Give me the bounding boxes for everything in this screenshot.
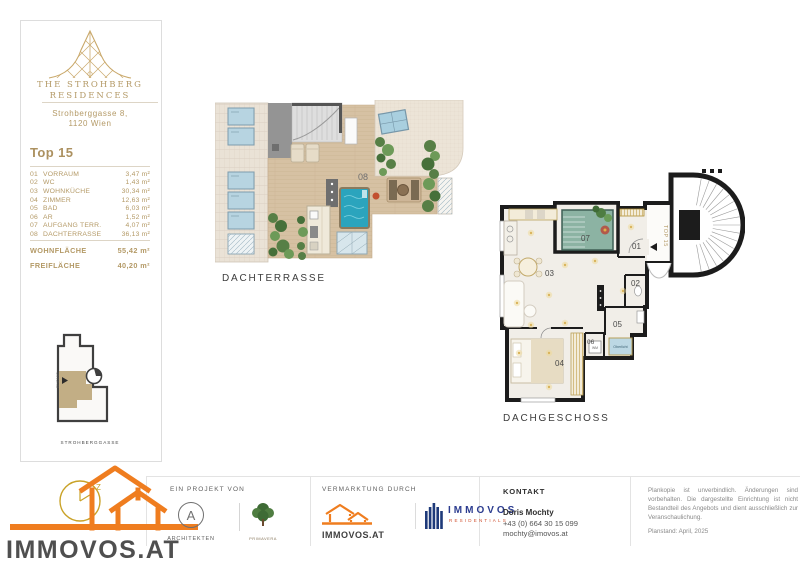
room-no: 07 xyxy=(30,222,43,229)
site-plan-mini: EINGANG xyxy=(50,332,120,432)
contact-email: mochty@imovos.at xyxy=(503,529,568,538)
room-name: DACHTERRASSE xyxy=(43,231,122,238)
room-row-07: 07AUFGANG TERR.4,07 m² xyxy=(30,222,150,231)
room-row-01: 01VORRAUM3,47 m² xyxy=(30,170,150,179)
strohberg-crown-logo xyxy=(45,28,135,80)
plunge-pool xyxy=(340,188,369,228)
room-area: 4,07 m² xyxy=(126,222,150,229)
room-name: BAD xyxy=(43,205,126,212)
entrance-label: EINGANG xyxy=(56,372,60,388)
brand-line-1: THE STROHBERG xyxy=(20,80,160,90)
disclaimer-text: Plankopie ist unverbindlich. Änderungen … xyxy=(648,487,798,523)
logo-separator-2 xyxy=(415,503,416,529)
unit-entrance-label: TOP 15 xyxy=(662,225,668,247)
plan-date: Planstand: April, 2025 xyxy=(648,528,708,535)
total-living-value: 55,42 m² xyxy=(118,246,150,255)
floor-plan-label: DACHGESCHOSS xyxy=(503,413,610,424)
utility-block xyxy=(268,103,292,158)
project-by-label: EIN PROJEKT VON xyxy=(170,486,245,493)
fire-bowl xyxy=(373,193,380,200)
deck-skylight xyxy=(337,232,367,254)
room-area: 3,47 m² xyxy=(126,171,150,178)
room-name: WOHNKÜCHE xyxy=(43,188,122,195)
sidebar-divider-2 xyxy=(30,166,150,167)
contact-heading: KONTAKT xyxy=(503,487,545,496)
logo-z-mark: Z xyxy=(96,483,101,492)
skylight-label: Oberlicht xyxy=(613,345,627,349)
room-no: 06 xyxy=(30,214,43,221)
deck-cabinet xyxy=(345,118,357,144)
partner-tree-logo xyxy=(248,500,278,530)
room-area: 1,52 m² xyxy=(126,214,150,221)
label-room-05: 05 xyxy=(613,320,622,329)
total-living-label: WOHNFLÄCHE xyxy=(30,246,118,255)
room-name: AUFGANG TERR. xyxy=(43,222,126,229)
house-outlines-icon xyxy=(82,468,164,528)
spiral-staircase xyxy=(671,169,743,275)
room-area: 6,03 m² xyxy=(126,205,150,212)
sidebar-divider-3 xyxy=(30,240,150,241)
footer-divider-4 xyxy=(630,476,631,546)
residentials-sub: RESIDENTIALS xyxy=(449,518,508,523)
total-outdoor-row: FREIFLÄCHE 40,20 m² xyxy=(30,261,150,270)
room-no: 08 xyxy=(30,231,43,238)
address-line-1: Strohberggasse 8, xyxy=(20,109,160,118)
room-no: 03 xyxy=(30,188,43,195)
sidebar-divider-1 xyxy=(42,102,158,103)
total-living-row: WOHNFLÄCHE 55,42 m² xyxy=(30,246,150,255)
brand-line-2: RESIDENCES xyxy=(20,91,160,101)
label-room-01: 01 xyxy=(632,242,641,251)
architects-logo: A xyxy=(174,500,208,534)
tree-trunk xyxy=(262,519,264,526)
terrace-plan: 08 xyxy=(215,100,465,265)
room-area: 36,13 m² xyxy=(122,231,150,238)
room-no: 04 xyxy=(30,197,43,204)
immovos-small-wordmark: IMMOVOS.AT xyxy=(322,530,384,540)
label-room-06: 06 xyxy=(587,339,595,346)
label-room-02: 02 xyxy=(631,279,640,288)
contact-name: Doris Mochty xyxy=(503,508,554,517)
pergola-slats xyxy=(326,179,338,207)
utility-hatch xyxy=(272,144,279,151)
terrace-plan-label: DACHTERRASSE xyxy=(222,273,326,284)
house-outlines-small-icon xyxy=(326,505,368,522)
unit-title: Top 15 xyxy=(30,145,73,160)
room-no: 01 xyxy=(30,171,43,178)
room-row-02: 02WC1,43 m² xyxy=(30,179,150,188)
room-name: WC xyxy=(43,179,126,186)
landing-bulge xyxy=(647,263,671,278)
marketing-by-label: VERMARKTUNG DURCH xyxy=(322,486,417,493)
room-row-03: 03WOHNKÜCHE30,34 m² xyxy=(30,187,150,196)
total-outdoor-value: 40,20 m² xyxy=(118,261,150,270)
contact-phone: +43 (0) 664 30 15 099 xyxy=(503,519,578,528)
outdoor-kitchen xyxy=(307,206,330,254)
logo-separator xyxy=(239,503,240,531)
room-no: 02 xyxy=(30,179,43,186)
room-list: 01VORRAUM3,47 m² 02WC1,43 m² 03WOHNKÜCHE… xyxy=(30,170,150,239)
architects-label: ARCHITEKTEN xyxy=(151,536,231,542)
room-row-08: 08DACHTERRASSE36,13 m² xyxy=(30,230,150,239)
room-name: ZIMMER xyxy=(43,197,122,204)
label-room-07: 07 xyxy=(581,234,590,243)
footer-divider-2 xyxy=(310,476,311,546)
washer-label: WM xyxy=(592,346,598,350)
room-no: 05 xyxy=(30,205,43,212)
floorplan-brochure-page: THE STROHBERG RESIDENCES Strohberggasse … xyxy=(0,0,800,565)
address-line-2: 1120 Wien xyxy=(20,119,160,128)
room-area: 30,34 m² xyxy=(122,188,150,195)
room-07-terrace-stairs xyxy=(555,203,618,252)
roof-strip-left xyxy=(215,103,268,262)
immovos-logo-small xyxy=(322,502,378,528)
roof-skylight xyxy=(378,110,408,134)
total-outdoor-label: FREIFLÄCHE xyxy=(30,261,118,270)
room-row-06: 06AR1,52 m² xyxy=(30,213,150,222)
room-name: VORRAUM xyxy=(43,171,126,178)
terrace-room-number: 08 xyxy=(358,172,368,182)
residentials-bars-icon xyxy=(425,502,443,530)
terrace-stair-access xyxy=(292,103,342,142)
architects-a-glyph: A xyxy=(187,508,196,523)
label-room-03: 03 xyxy=(545,269,554,278)
footer-top-rule xyxy=(146,476,800,477)
bath-skylight: Oberlicht xyxy=(609,338,632,355)
partner-label: PRIMAVERA xyxy=(238,536,288,541)
floor-plan: WM Oberlicht 01 02 03 04 xyxy=(497,163,745,408)
room-row-05: 05BAD6,03 m² xyxy=(30,204,150,213)
street-label: STROHBERGGASSE xyxy=(20,440,160,445)
room-area: 1,43 m² xyxy=(126,179,150,186)
label-room-04: 04 xyxy=(555,359,564,368)
room-area: 12,63 m² xyxy=(122,197,150,204)
room-name: AR xyxy=(43,214,126,221)
room-row-04: 04ZIMMER12,63 m² xyxy=(30,196,150,205)
